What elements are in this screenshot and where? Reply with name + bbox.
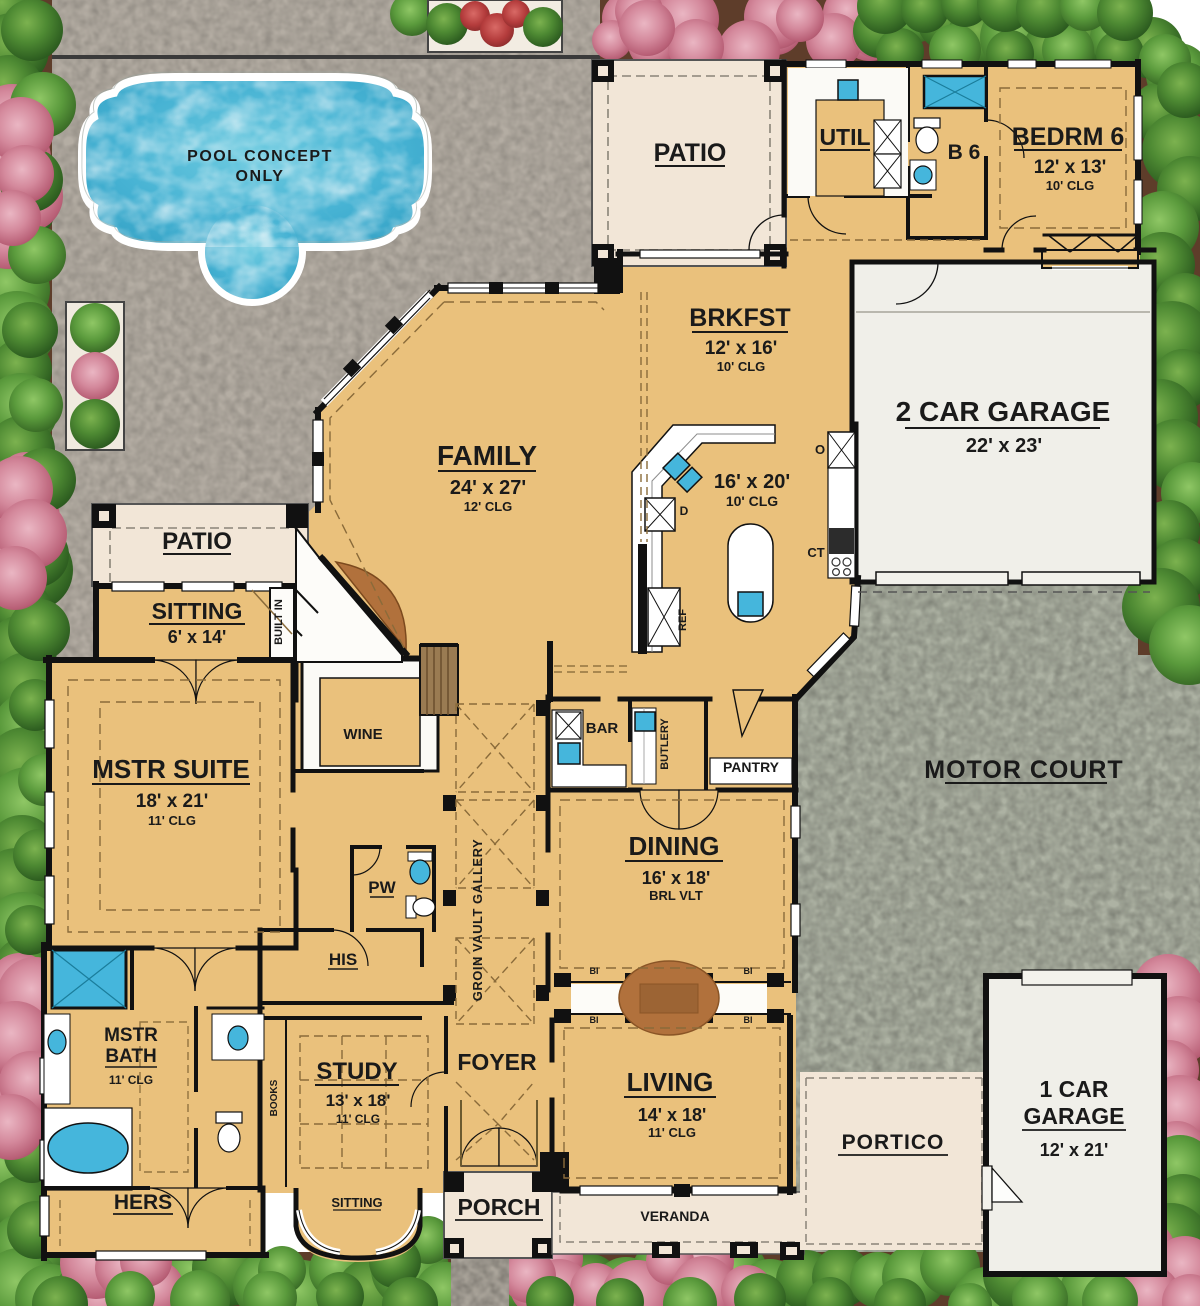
svg-text:12' x 16': 12' x 16' [705, 338, 777, 359]
svg-text:HIS: HIS [329, 950, 357, 969]
svg-text:ONLY: ONLY [236, 168, 285, 185]
svg-text:18' x 21': 18' x 21' [136, 791, 208, 812]
svg-text:UTIL: UTIL [819, 124, 870, 150]
svg-text:MSTR SUITE: MSTR SUITE [92, 754, 249, 784]
svg-text:12' x 13': 12' x 13' [1034, 157, 1106, 178]
svg-text:BUTLERY: BUTLERY [659, 718, 671, 770]
svg-text:14' x 18': 14' x 18' [638, 1105, 707, 1125]
svg-text:BOOKS: BOOKS [269, 1079, 280, 1116]
svg-text:MSTR: MSTR [104, 1025, 158, 1046]
svg-text:11' CLG: 11' CLG [648, 1125, 696, 1140]
svg-text:BATH: BATH [105, 1046, 156, 1067]
svg-text:PORTICO: PORTICO [842, 1131, 945, 1154]
svg-text:FOYER: FOYER [457, 1049, 537, 1075]
svg-text:BUILT IN: BUILT IN [273, 599, 285, 645]
svg-text:BI: BI [590, 966, 599, 976]
svg-text:10' CLG: 10' CLG [726, 493, 778, 509]
svg-text:1 CAR: 1 CAR [1039, 1076, 1108, 1102]
svg-text:24' x 27': 24' x 27' [450, 477, 526, 499]
svg-text:BI: BI [744, 966, 753, 976]
svg-text:STUDY: STUDY [316, 1058, 397, 1085]
svg-text:BRL VLT: BRL VLT [649, 888, 703, 903]
svg-text:LIVING: LIVING [627, 1067, 714, 1097]
svg-text:11' CLG: 11' CLG [148, 813, 196, 828]
svg-text:BRKFST: BRKFST [689, 304, 790, 332]
svg-text:HERS: HERS [114, 1191, 172, 1214]
svg-text:SITTING: SITTING [331, 1195, 382, 1210]
svg-text:PANTRY: PANTRY [723, 759, 780, 775]
svg-text:DINING: DINING [629, 831, 720, 861]
svg-text:B 6: B 6 [948, 141, 981, 164]
svg-text:MOTOR COURT: MOTOR COURT [924, 756, 1123, 784]
svg-text:PATIO: PATIO [654, 139, 727, 167]
svg-text:REF: REF [677, 609, 689, 631]
svg-text:POOL CONCEPT: POOL CONCEPT [187, 148, 333, 165]
svg-text:VERANDA: VERANDA [640, 1208, 709, 1224]
svg-text:BI: BI [590, 1015, 599, 1025]
svg-text:12' x 21': 12' x 21' [1040, 1140, 1109, 1160]
svg-text:13' x 18': 13' x 18' [326, 1091, 391, 1110]
svg-text:WINE: WINE [343, 726, 382, 743]
svg-text:10' CLG: 10' CLG [1046, 178, 1095, 193]
svg-text:CT: CT [807, 545, 824, 560]
svg-text:PW: PW [368, 878, 396, 897]
svg-text:GARAGE: GARAGE [1024, 1103, 1125, 1129]
svg-text:10' CLG: 10' CLG [717, 359, 766, 374]
svg-text:BI: BI [744, 1015, 753, 1025]
svg-text:16' x 18': 16' x 18' [642, 868, 711, 888]
svg-text:12' CLG: 12' CLG [464, 499, 513, 514]
svg-text:D: D [680, 504, 689, 518]
svg-text:11' CLG: 11' CLG [336, 1112, 380, 1126]
svg-text:6' x 14': 6' x 14' [168, 627, 227, 647]
svg-text:22' x 23': 22' x 23' [966, 435, 1042, 457]
svg-text:BAR: BAR [586, 720, 619, 737]
svg-text:PORCH: PORCH [457, 1194, 540, 1220]
svg-text:BEDRM 6: BEDRM 6 [1012, 123, 1125, 151]
svg-text:SITTING: SITTING [152, 598, 243, 624]
svg-text:FAMILY: FAMILY [437, 440, 537, 471]
svg-text:11' CLG: 11' CLG [109, 1073, 153, 1087]
svg-text:16' x 20': 16' x 20' [714, 471, 790, 493]
svg-text:2 CAR GARAGE: 2 CAR GARAGE [896, 396, 1111, 427]
svg-text:O: O [815, 442, 825, 457]
svg-text:PATIO: PATIO [162, 528, 232, 555]
svg-text:GROIN VAULT GALLERY: GROIN VAULT GALLERY [470, 839, 485, 1001]
